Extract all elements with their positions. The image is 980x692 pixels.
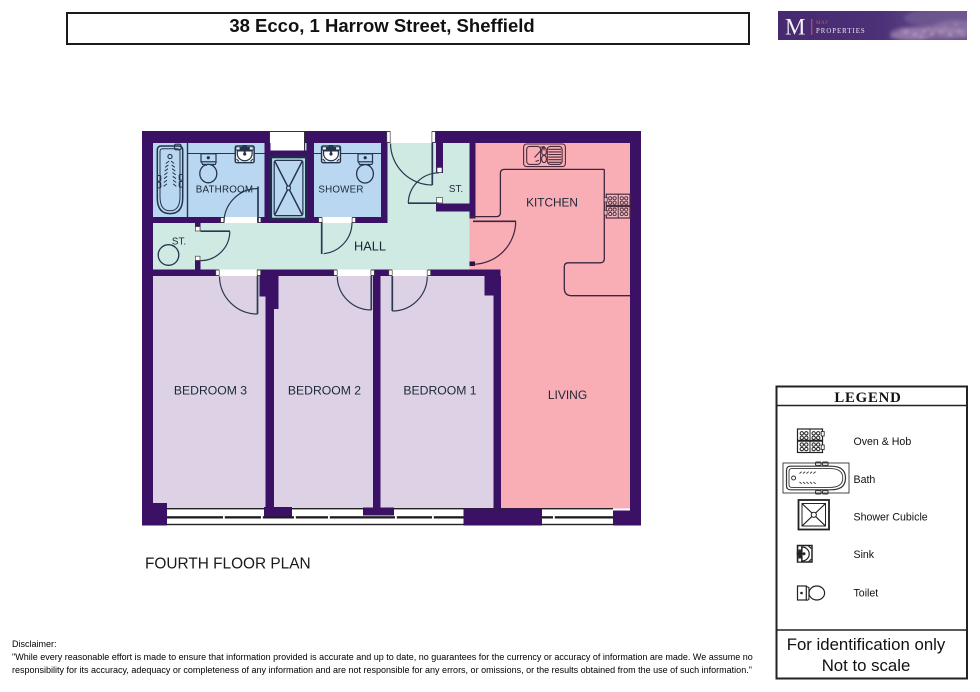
svg-text:Toilet: Toilet [854,588,879,600]
svg-text:BEDROOM 1: BEDROOM 1 [403,384,476,398]
svg-text:BATHROOM: BATHROOM [196,185,253,196]
svg-text:LIVING: LIVING [548,388,587,402]
svg-text:BEDROOM 2: BEDROOM 2 [288,384,361,398]
svg-text:Bath: Bath [854,474,876,486]
svg-text:Oven & Hob: Oven & Hob [854,436,912,448]
svg-text:Sink: Sink [854,549,875,561]
svg-text:ST.: ST. [172,237,186,248]
svg-text:BEDROOM 3: BEDROOM 3 [174,384,247,398]
svg-text:SHOWER: SHOWER [318,185,363,196]
svg-text:ST.: ST. [449,184,463,195]
svg-text:Shower Cubicle: Shower Cubicle [854,512,928,524]
svg-text:KITCHEN: KITCHEN [526,196,578,210]
svg-text:LEGEND: LEGEND [834,390,901,406]
svg-text:FOURTH FLOOR PLAN: FOURTH FLOOR PLAN [145,556,311,573]
svg-text:HALL: HALL [354,239,386,254]
